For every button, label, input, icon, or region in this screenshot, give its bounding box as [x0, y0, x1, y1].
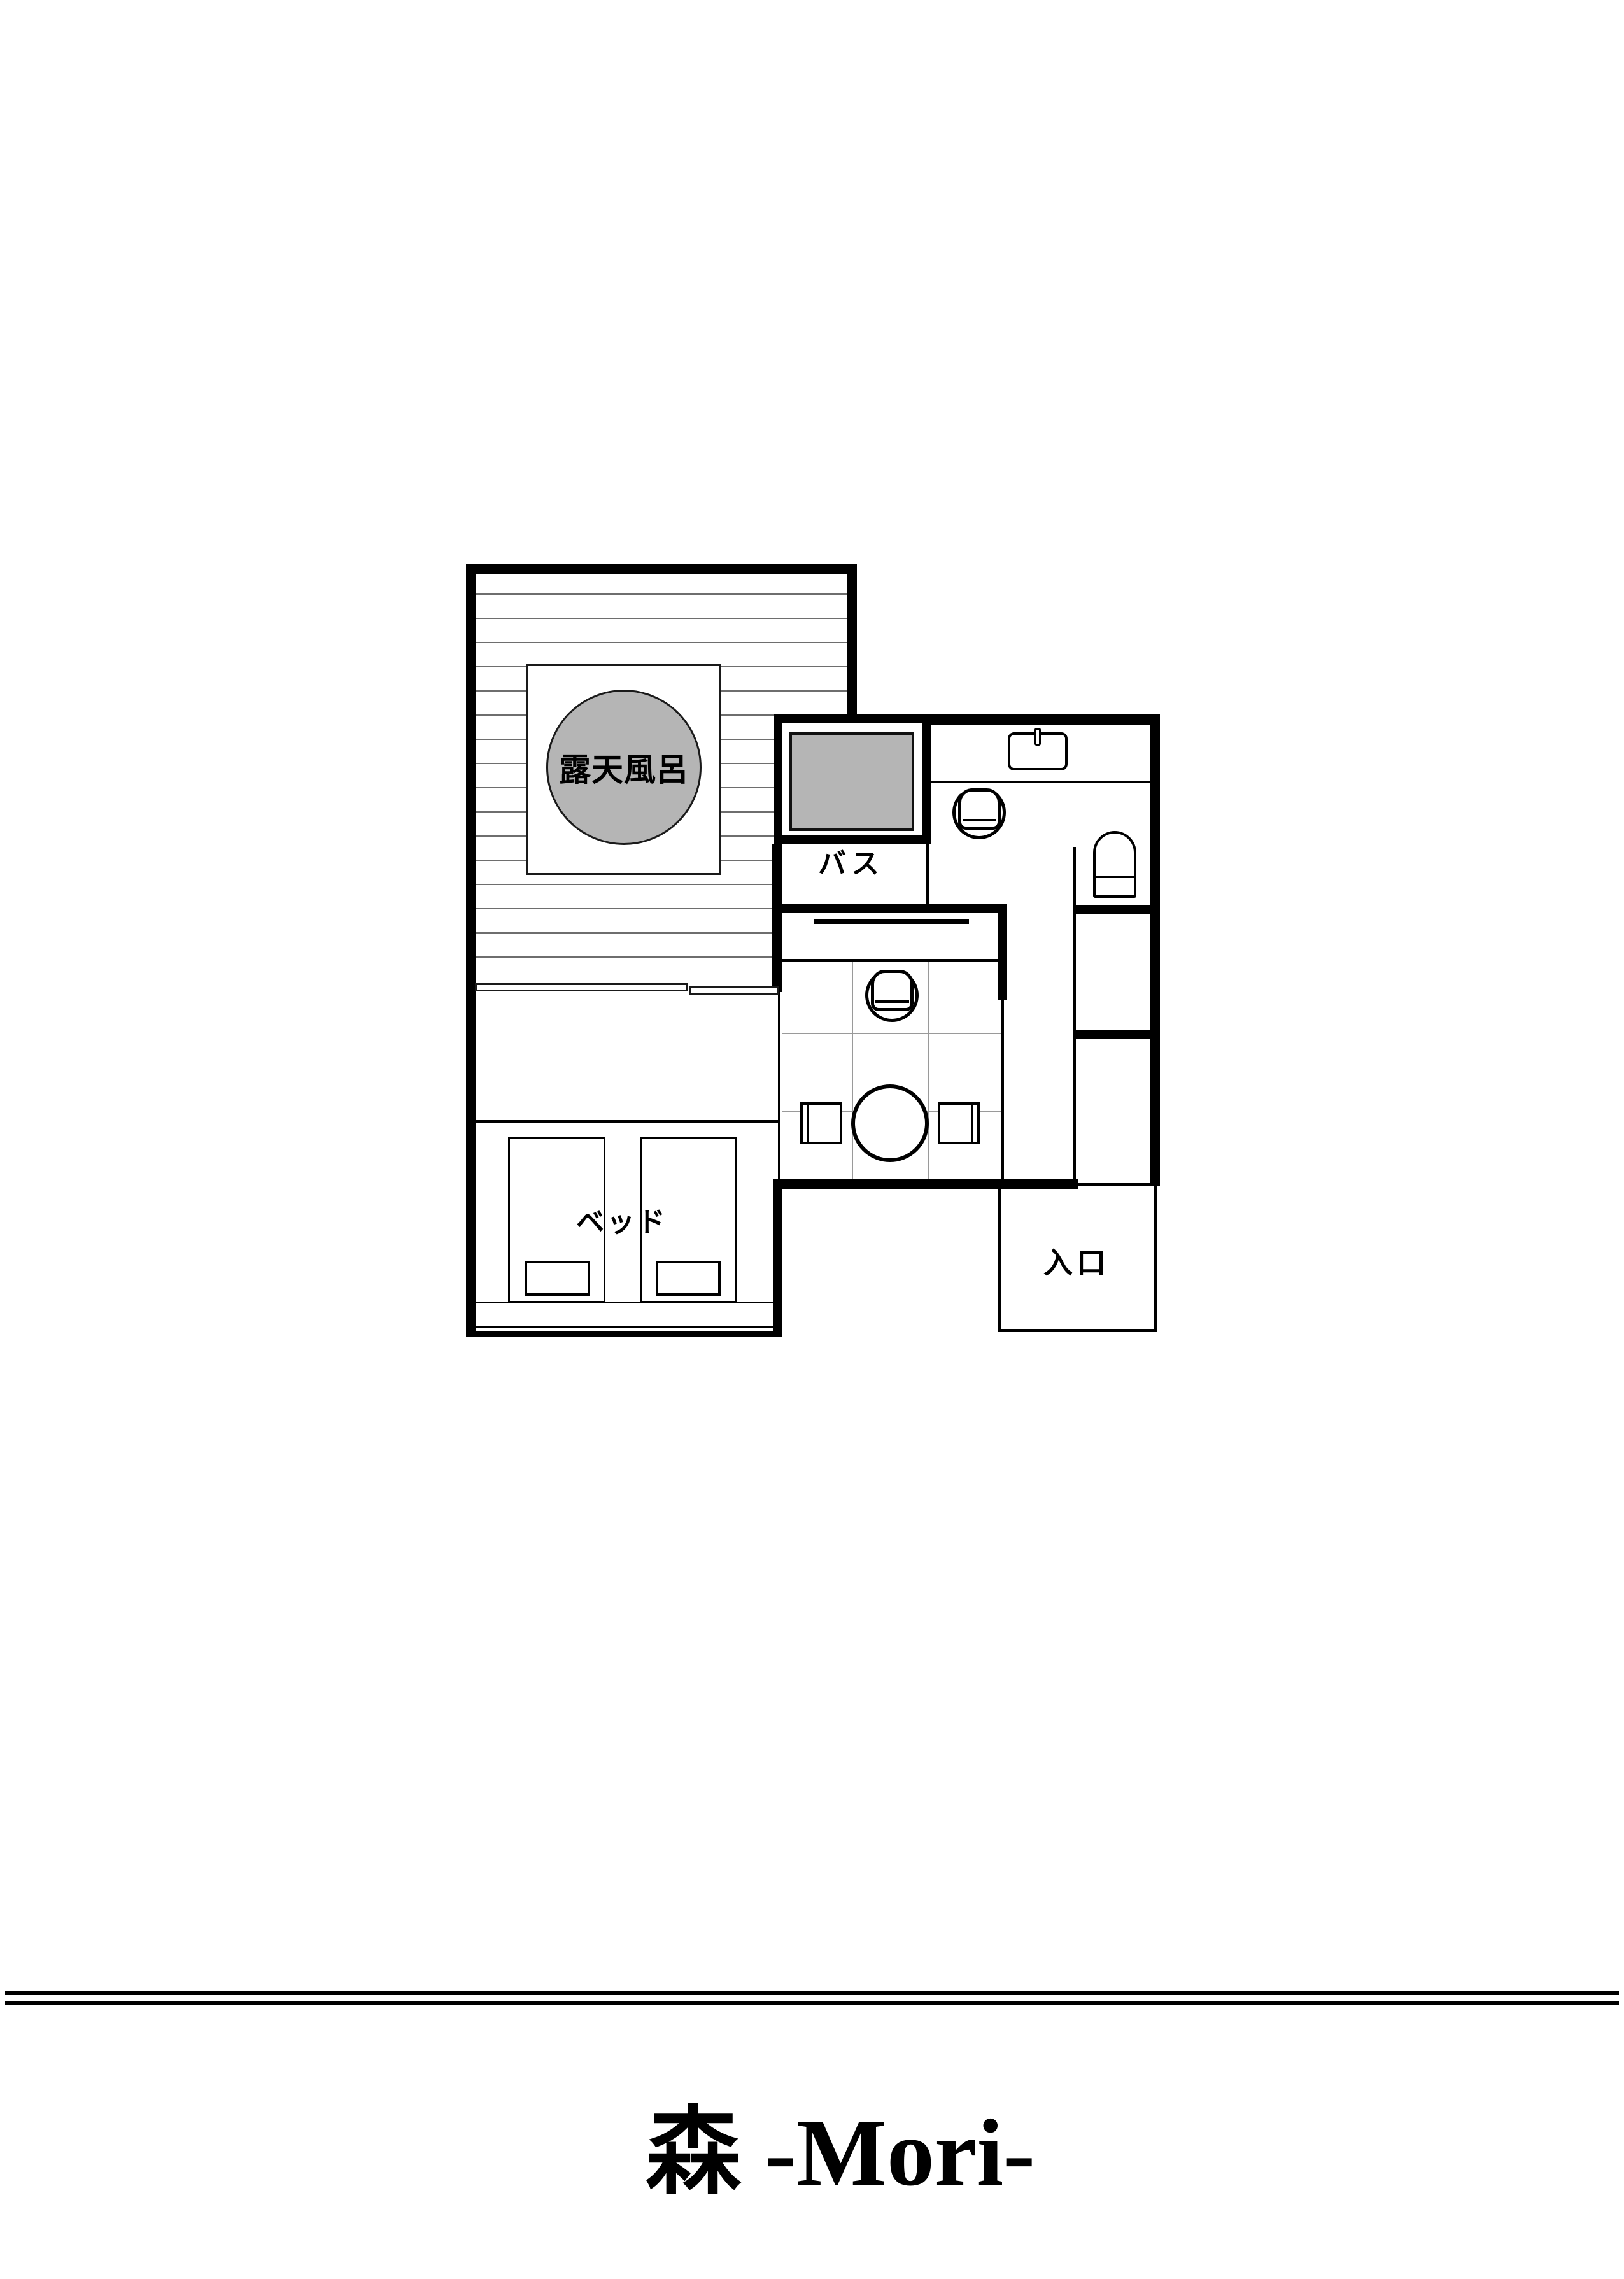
wall-left-outer	[466, 564, 476, 1336]
divider-rule-top	[5, 1991, 1619, 1995]
faucet-icon	[1034, 728, 1041, 746]
wall-deck-right	[847, 564, 857, 717]
line-hall-grid-divider	[1001, 962, 1004, 1179]
sliding-door-panel-2	[689, 986, 779, 995]
toilet-tank-line	[1096, 876, 1134, 878]
wall-toilet-bottom	[1073, 905, 1150, 914]
floor-stool-right-line	[971, 1105, 973, 1142]
pillow-left	[525, 1261, 590, 1296]
bathtub	[789, 732, 914, 831]
line-counter-bottom	[782, 959, 1003, 962]
line-bedroom-mainroom-divider	[778, 992, 780, 1179]
wall-bedroom-right	[773, 1179, 782, 1336]
outdoor-bath-tub: 露天風呂	[546, 690, 702, 845]
divider-rule-bottom	[5, 2001, 1619, 2005]
entrance-label: 入口	[1043, 1240, 1110, 1282]
grid-line-v2	[928, 962, 929, 1179]
wall-washroom-bottom	[782, 904, 1007, 913]
wall-mainroom-bottom	[773, 1179, 1078, 1189]
floor-stool-right	[938, 1102, 980, 1144]
floor-stool-left	[800, 1102, 842, 1144]
page-title: 森 -Mori-	[646, 2075, 1035, 2213]
outdoor-bath-label: 露天風呂	[559, 744, 689, 790]
pillow-right	[656, 1261, 721, 1296]
main-room-chair-seatline	[875, 1000, 909, 1003]
wall-top-deck	[466, 564, 857, 574]
round-table	[851, 1084, 929, 1162]
wall-closet-divider	[1073, 1030, 1150, 1039]
line-closet-hall-divider	[1073, 847, 1076, 1179]
bath-label: バス	[818, 841, 884, 881]
counter-edge-line	[814, 919, 969, 924]
washroom-chair	[958, 788, 1001, 830]
main-room-chair	[871, 970, 914, 1011]
grid-line-v1	[852, 962, 853, 1179]
page: 露天風呂 バス ベッド 入口 森 -Mori-	[0, 0, 1624, 2279]
wall-bath-left	[772, 844, 782, 992]
wall-washroom-top	[931, 714, 1150, 725]
line-vanity-front	[931, 781, 1150, 783]
wall-right-outer	[1150, 714, 1160, 1186]
grid-line-h1	[782, 1033, 1001, 1034]
wall-bedroom-bottom	[466, 1331, 782, 1337]
line-bedroom-bottom-sill	[476, 1326, 780, 1328]
line-bath-washroom-divider	[926, 844, 929, 904]
bed-label: ベッド	[576, 1199, 668, 1240]
floor-stool-left-line	[807, 1105, 809, 1142]
washroom-chair-seatline	[963, 819, 996, 821]
line-bed-platform-top	[476, 1120, 780, 1123]
toilet	[1093, 831, 1136, 898]
sliding-door-panel-1	[475, 983, 688, 991]
